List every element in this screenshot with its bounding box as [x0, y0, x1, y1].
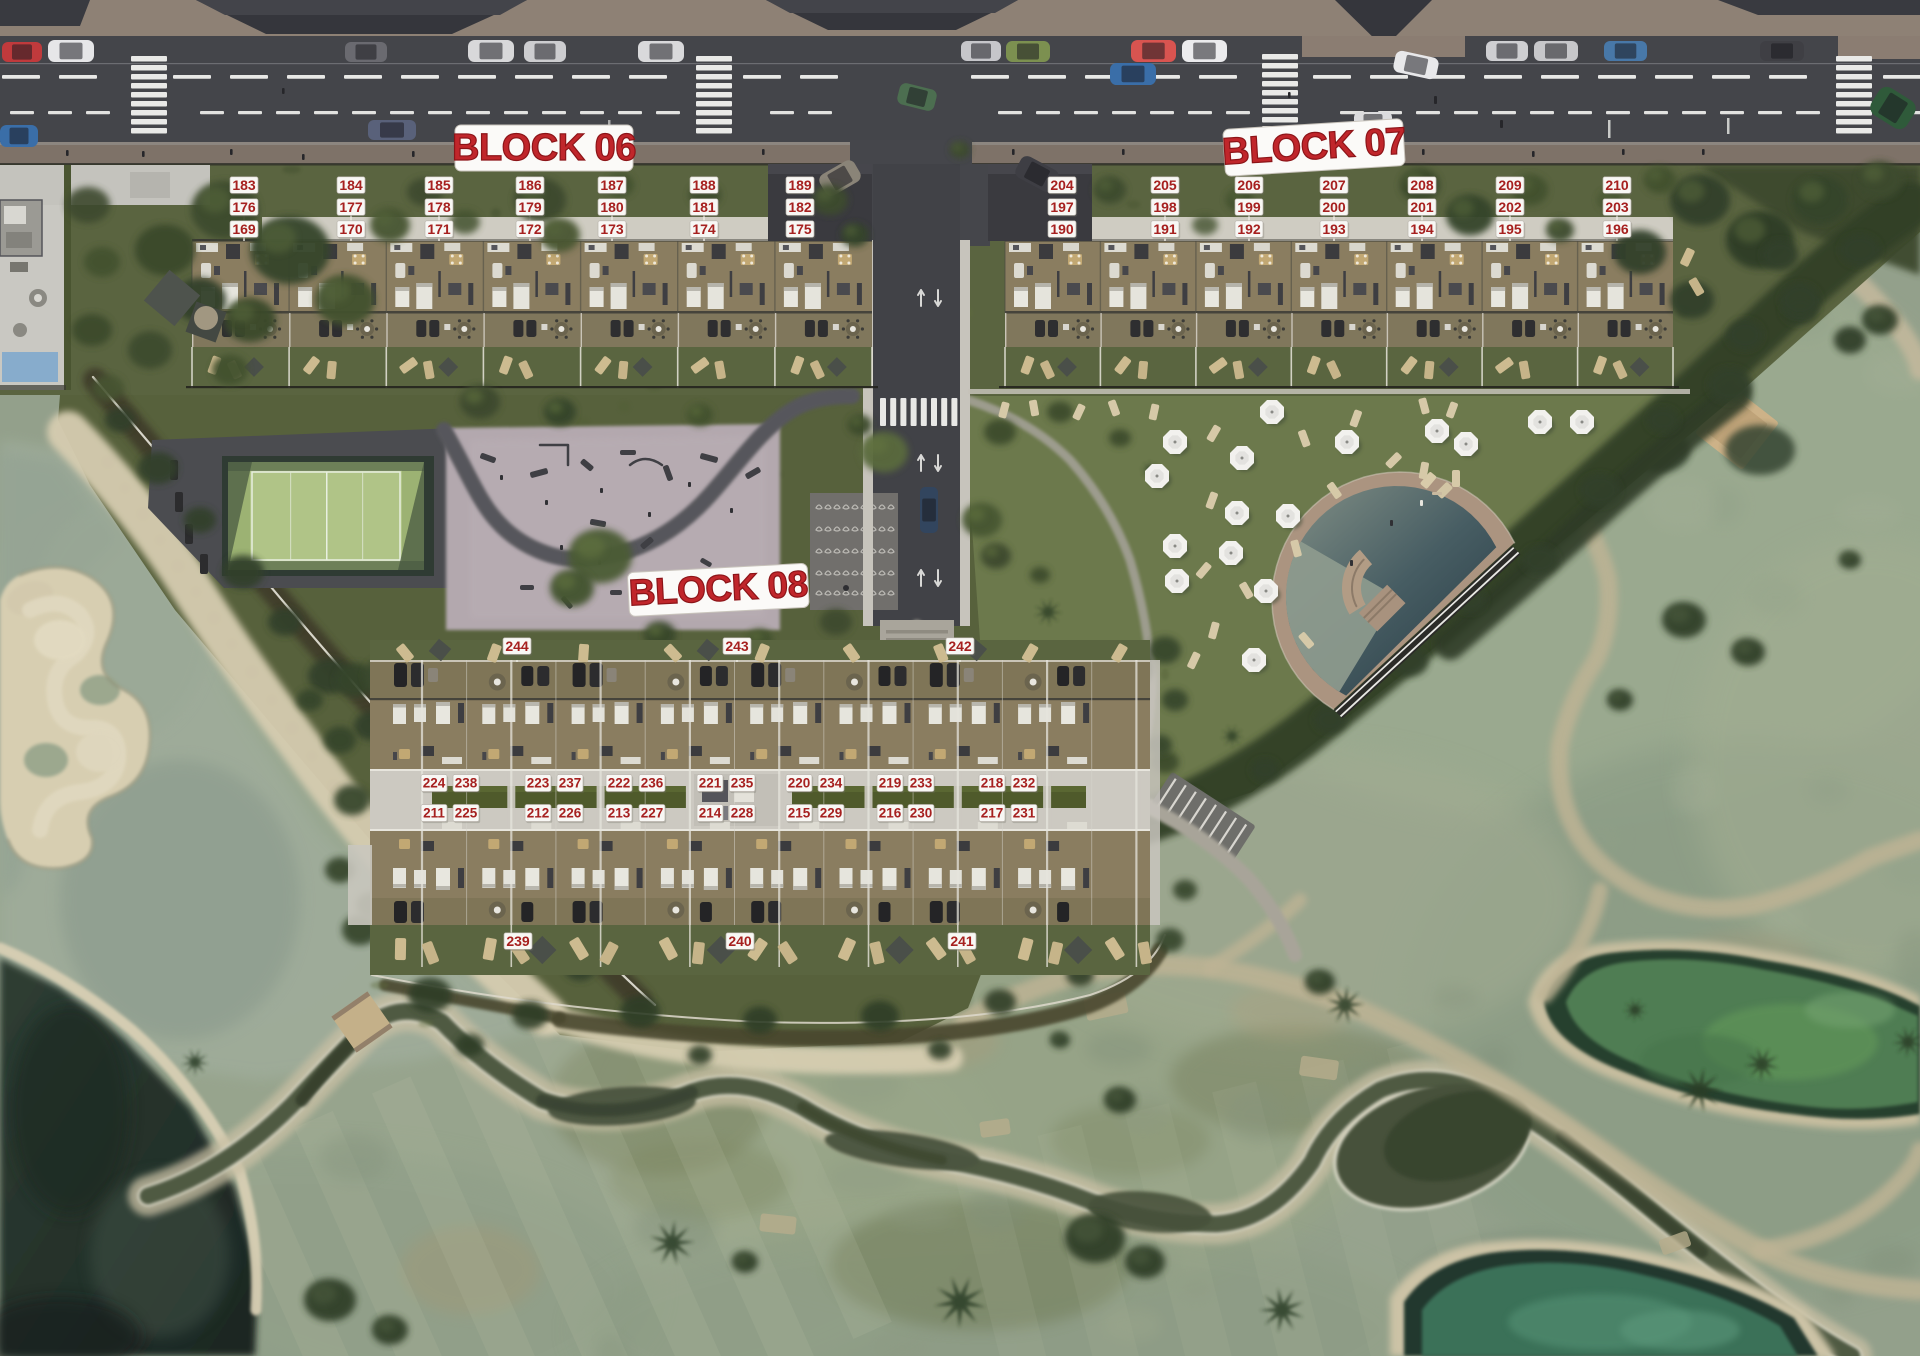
svg-text:191: 191 — [1153, 221, 1177, 237]
svg-text:216: 216 — [879, 806, 902, 821]
svg-text:BLOCK 06: BLOCK 06 — [452, 127, 636, 169]
svg-text:194: 194 — [1410, 221, 1434, 237]
svg-text:230: 230 — [910, 806, 933, 821]
svg-text:182: 182 — [788, 199, 812, 215]
svg-text:241: 241 — [950, 933, 974, 949]
svg-text:212: 212 — [527, 806, 550, 821]
svg-text:228: 228 — [731, 806, 754, 821]
svg-text:217: 217 — [981, 806, 1004, 821]
svg-text:242: 242 — [948, 638, 972, 654]
svg-text:231: 231 — [1013, 806, 1036, 821]
svg-text:226: 226 — [559, 806, 582, 821]
svg-text:178: 178 — [427, 199, 451, 215]
svg-text:213: 213 — [608, 806, 631, 821]
svg-text:206: 206 — [1237, 177, 1261, 193]
svg-text:240: 240 — [728, 933, 752, 949]
svg-text:209: 209 — [1498, 177, 1522, 193]
svg-text:176: 176 — [232, 199, 256, 215]
svg-text:218: 218 — [981, 776, 1004, 791]
svg-text:201: 201 — [1410, 199, 1434, 215]
svg-text:193: 193 — [1322, 221, 1346, 237]
svg-text:207: 207 — [1322, 177, 1346, 193]
svg-text:196: 196 — [1605, 221, 1629, 237]
svg-text:189: 189 — [788, 177, 812, 193]
svg-text:177: 177 — [339, 199, 363, 215]
svg-text:227: 227 — [641, 806, 664, 821]
svg-text:235: 235 — [731, 776, 754, 791]
svg-text:171: 171 — [427, 221, 451, 237]
svg-text:238: 238 — [455, 776, 478, 791]
svg-text:236: 236 — [641, 776, 664, 791]
svg-text:180: 180 — [600, 199, 624, 215]
svg-text:195: 195 — [1498, 221, 1522, 237]
svg-text:185: 185 — [427, 177, 451, 193]
svg-text:205: 205 — [1153, 177, 1177, 193]
svg-text:221: 221 — [699, 776, 722, 791]
svg-text:184: 184 — [339, 177, 363, 193]
svg-text:232: 232 — [1013, 776, 1036, 791]
svg-text:237: 237 — [559, 776, 582, 791]
svg-text:220: 220 — [788, 776, 811, 791]
svg-text:225: 225 — [455, 806, 478, 821]
svg-text:173: 173 — [600, 221, 624, 237]
svg-text:211: 211 — [423, 806, 445, 821]
svg-text:175: 175 — [788, 221, 812, 237]
svg-text:198: 198 — [1153, 199, 1177, 215]
svg-text:190: 190 — [1050, 221, 1074, 237]
svg-text:234: 234 — [820, 776, 843, 791]
svg-text:179: 179 — [518, 199, 542, 215]
svg-text:210: 210 — [1605, 177, 1629, 193]
svg-text:197: 197 — [1050, 199, 1074, 215]
svg-text:172: 172 — [518, 221, 542, 237]
svg-text:192: 192 — [1237, 221, 1261, 237]
svg-text:204: 204 — [1050, 177, 1074, 193]
svg-text:223: 223 — [527, 776, 550, 791]
svg-text:214: 214 — [699, 806, 722, 821]
svg-text:200: 200 — [1322, 199, 1346, 215]
svg-text:170: 170 — [339, 221, 363, 237]
svg-text:202: 202 — [1498, 199, 1522, 215]
svg-text:188: 188 — [692, 177, 716, 193]
svg-text:219: 219 — [879, 776, 902, 791]
svg-text:243: 243 — [725, 638, 749, 654]
svg-text:224: 224 — [423, 776, 446, 791]
svg-text:203: 203 — [1605, 199, 1629, 215]
svg-text:199: 199 — [1237, 199, 1261, 215]
svg-text:244: 244 — [505, 638, 529, 654]
svg-text:215: 215 — [788, 806, 811, 821]
svg-text:233: 233 — [910, 776, 933, 791]
svg-text:208: 208 — [1410, 177, 1434, 193]
svg-text:239: 239 — [506, 933, 530, 949]
svg-text:183: 183 — [232, 177, 256, 193]
svg-text:229: 229 — [820, 806, 843, 821]
svg-text:174: 174 — [692, 221, 716, 237]
svg-text:181: 181 — [692, 199, 716, 215]
svg-text:186: 186 — [518, 177, 542, 193]
svg-text:222: 222 — [608, 776, 631, 791]
svg-text:187: 187 — [600, 177, 624, 193]
svg-text:169: 169 — [232, 221, 256, 237]
